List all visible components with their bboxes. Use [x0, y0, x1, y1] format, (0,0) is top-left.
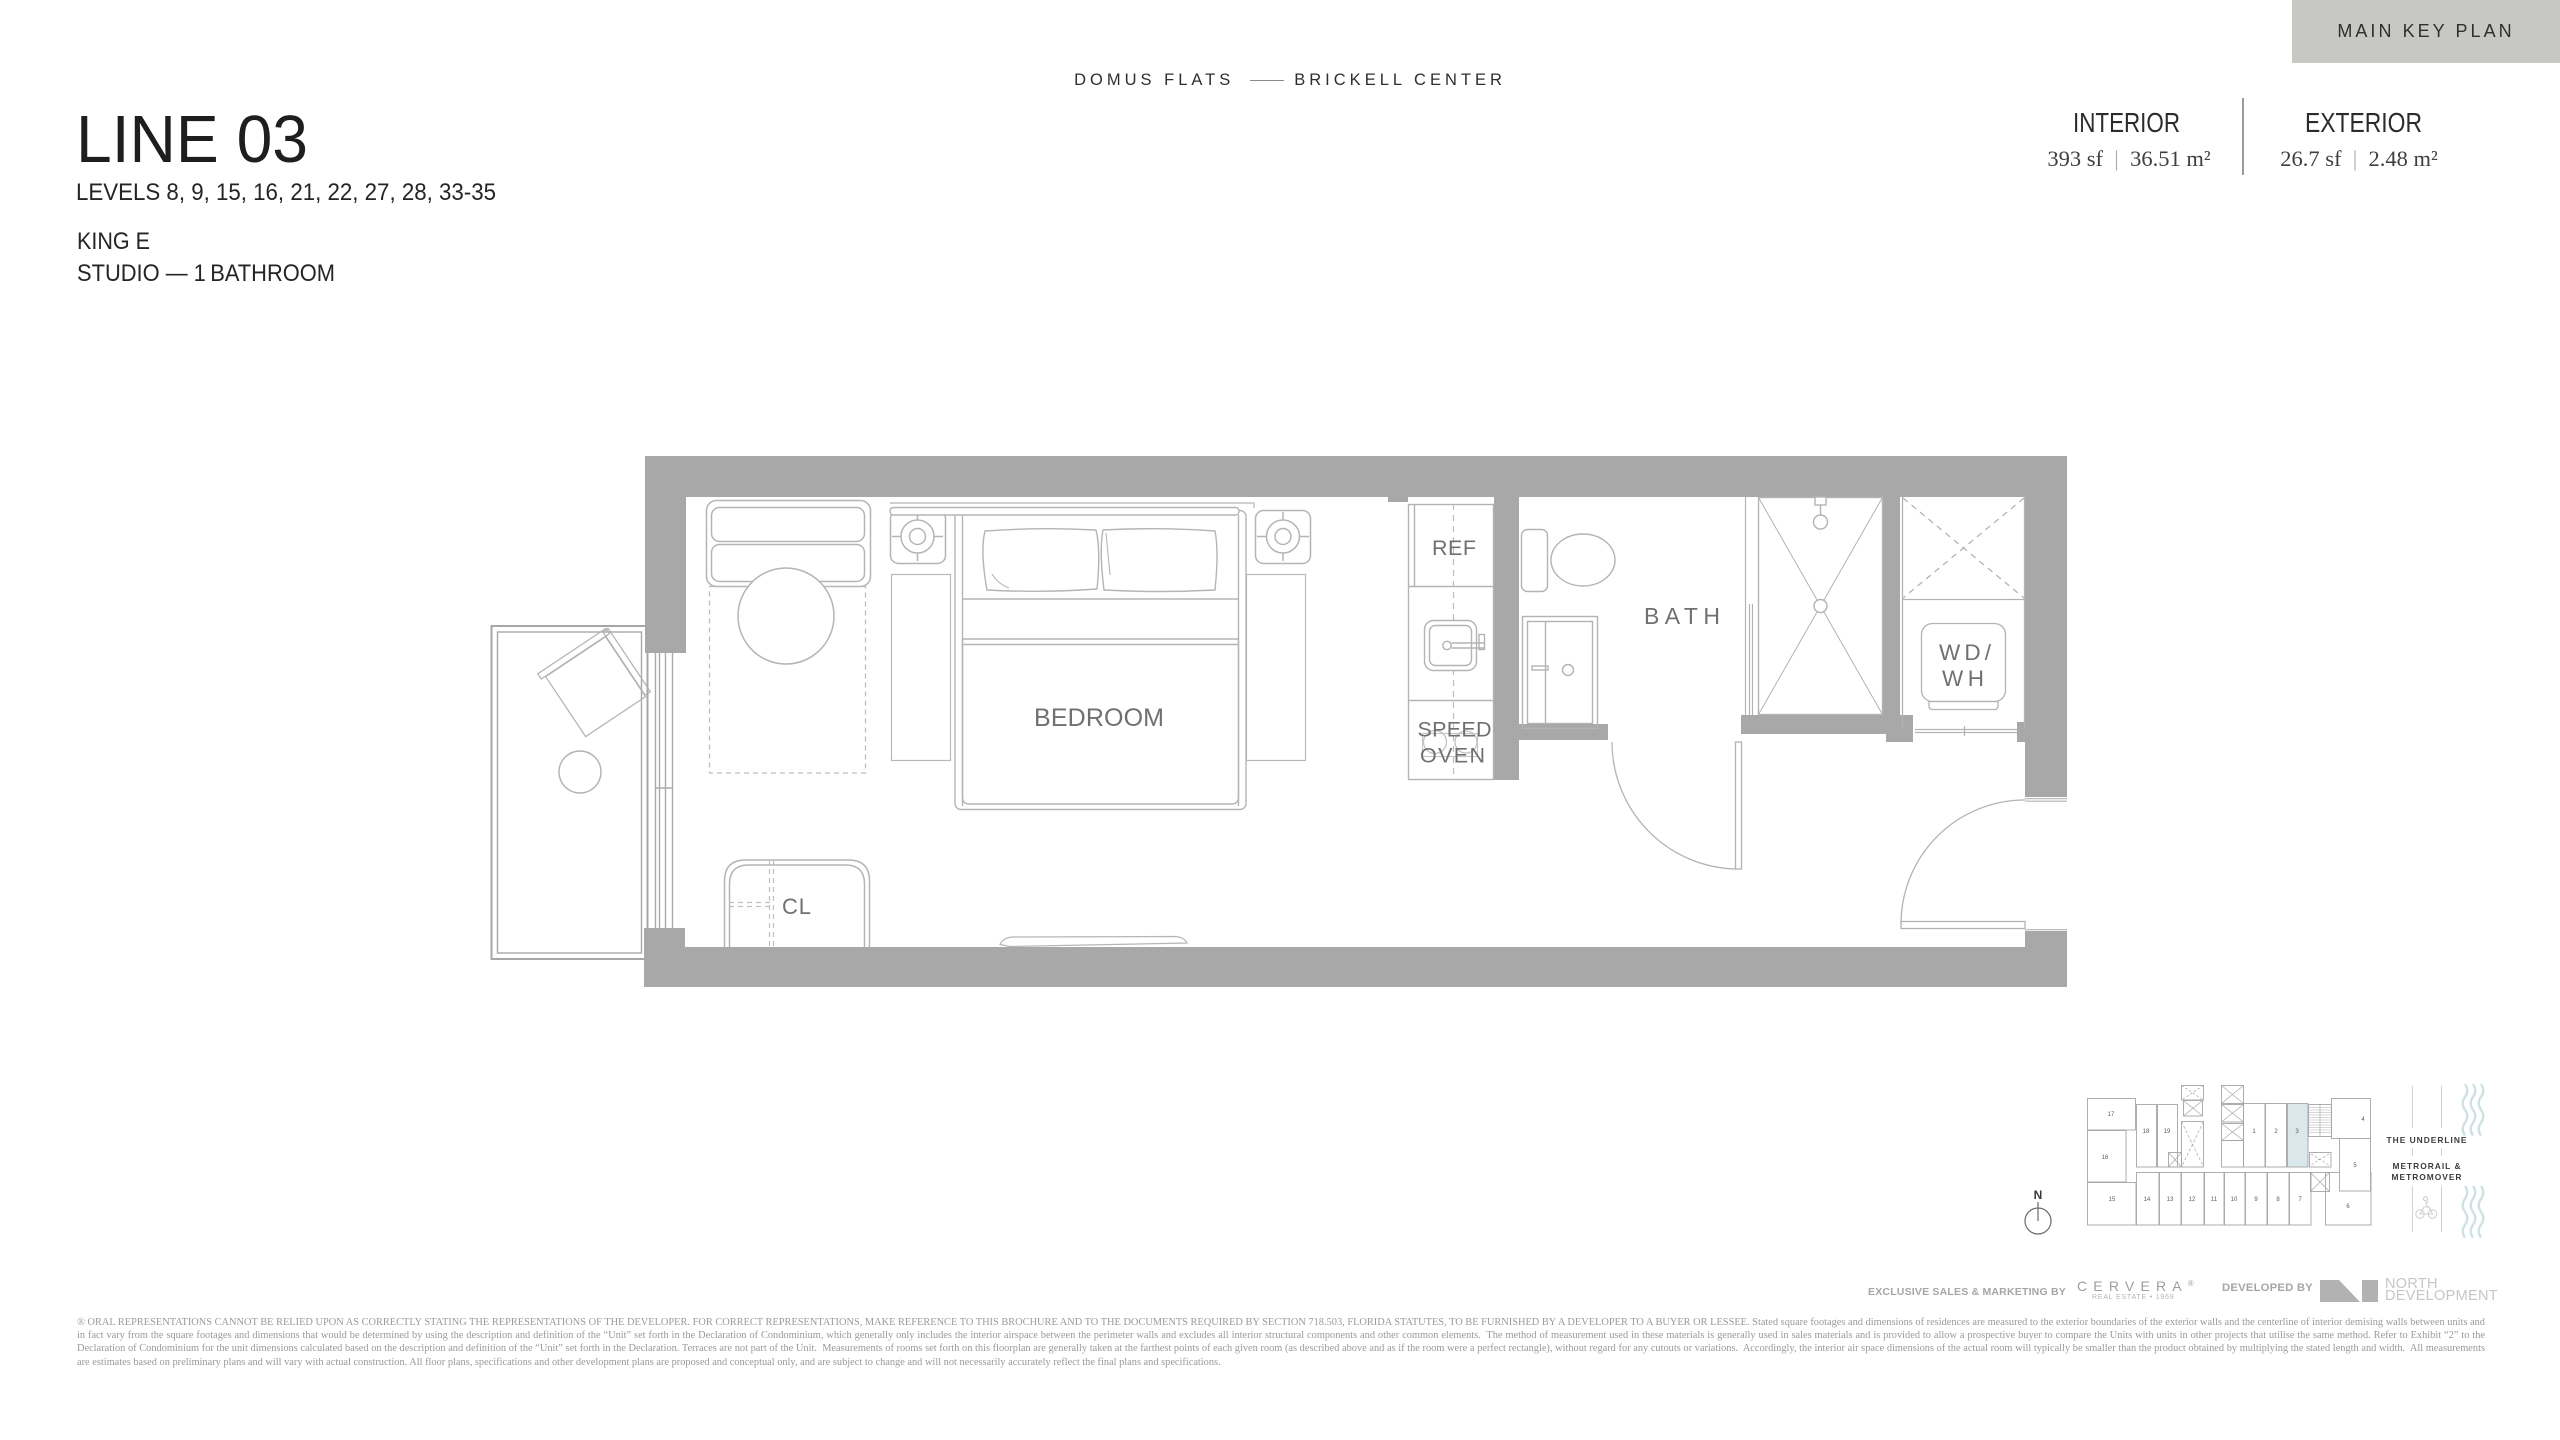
svg-text:15: 15: [2109, 1197, 2116, 1203]
svg-text:SPEED: SPEED: [1418, 718, 1492, 742]
svg-text:14: 14: [2144, 1197, 2151, 1203]
svg-text:13: 13: [2167, 1197, 2174, 1203]
svg-text:WD/: WD/: [1939, 640, 1992, 665]
svg-text:OVEN: OVEN: [1420, 744, 1485, 768]
svg-text:METRORAIL &: METRORAIL &: [2392, 1161, 2461, 1171]
svg-text:METROMOVER: METROMOVER: [2392, 1172, 2463, 1182]
svg-text:THE UNDERLINE: THE UNDERLINE: [2387, 1135, 2468, 1145]
svg-text:6: 6: [2346, 1204, 2350, 1210]
svg-text:12: 12: [2189, 1197, 2196, 1203]
svg-text:1: 1: [2252, 1129, 2256, 1135]
svg-text:19: 19: [2164, 1129, 2171, 1135]
svg-text:REF: REF: [1432, 536, 1476, 560]
svg-text:18: 18: [2143, 1129, 2150, 1135]
svg-text:BEDROOM: BEDROOM: [1034, 704, 1164, 732]
svg-text:CL: CL: [782, 894, 811, 919]
svg-text:16: 16: [2102, 1155, 2109, 1161]
svg-text:9: 9: [2254, 1197, 2258, 1203]
svg-text:17: 17: [2108, 1112, 2115, 1118]
svg-text:N: N: [2034, 1188, 2043, 1202]
svg-text:10: 10: [2231, 1197, 2238, 1203]
svg-text:BATH: BATH: [1644, 603, 1720, 629]
svg-text:4: 4: [2361, 1117, 2365, 1123]
svg-text:WH: WH: [1942, 666, 1984, 691]
svg-text:7: 7: [2298, 1197, 2302, 1203]
svg-text:2: 2: [2274, 1129, 2278, 1135]
svg-text:8: 8: [2276, 1197, 2280, 1203]
svg-text:11: 11: [2211, 1197, 2218, 1203]
